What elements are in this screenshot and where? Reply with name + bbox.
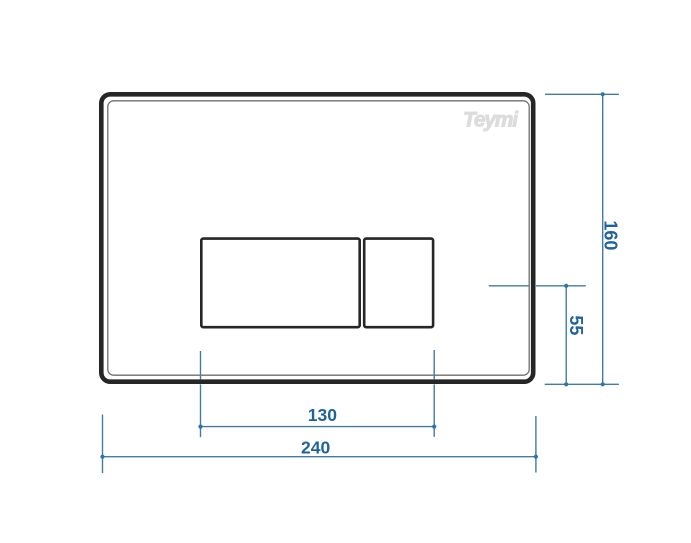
svg-text:130: 130 [308,405,337,425]
svg-text:160: 160 [601,220,621,250]
svg-text:240: 240 [301,438,330,458]
svg-text:Teymi: Teymi [463,108,519,131]
svg-text:55: 55 [566,315,586,335]
